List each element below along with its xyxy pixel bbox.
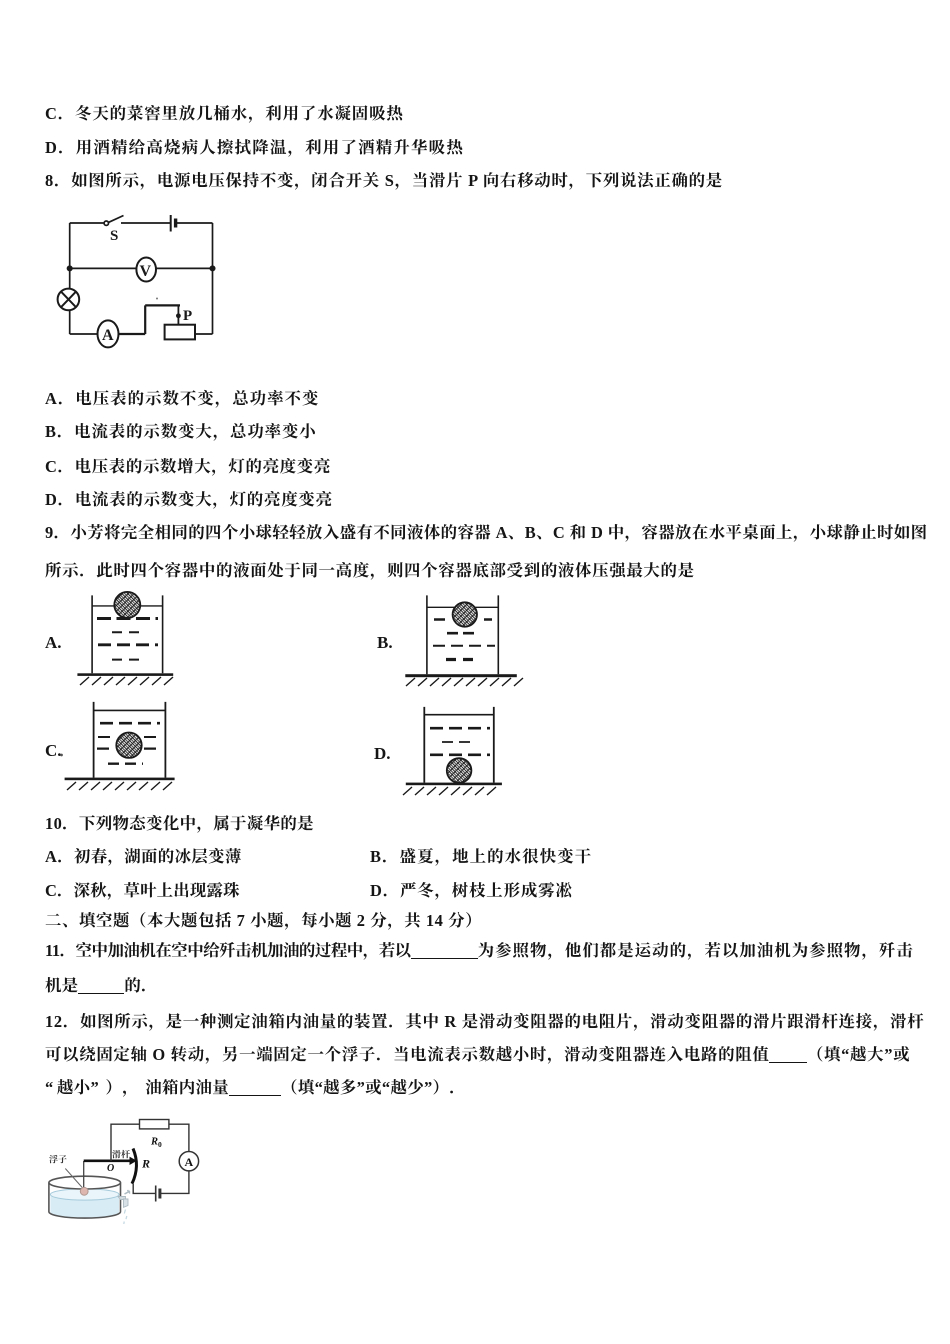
- svg-text:滑杆: 滑杆: [112, 1148, 130, 1161]
- svg-text:A: A: [102, 327, 114, 344]
- svg-text:P: P: [183, 308, 192, 324]
- svg-text:O: O: [107, 1163, 114, 1174]
- svg-text:A: A: [185, 1155, 194, 1169]
- svg-text:0: 0: [158, 1140, 162, 1149]
- svg-text:R: R: [150, 1137, 158, 1148]
- svg-text:V: V: [140, 263, 152, 280]
- svg-text:S: S: [110, 228, 118, 244]
- svg-text:浮子: 浮子: [49, 1153, 67, 1166]
- svg-text:R: R: [141, 1157, 150, 1171]
